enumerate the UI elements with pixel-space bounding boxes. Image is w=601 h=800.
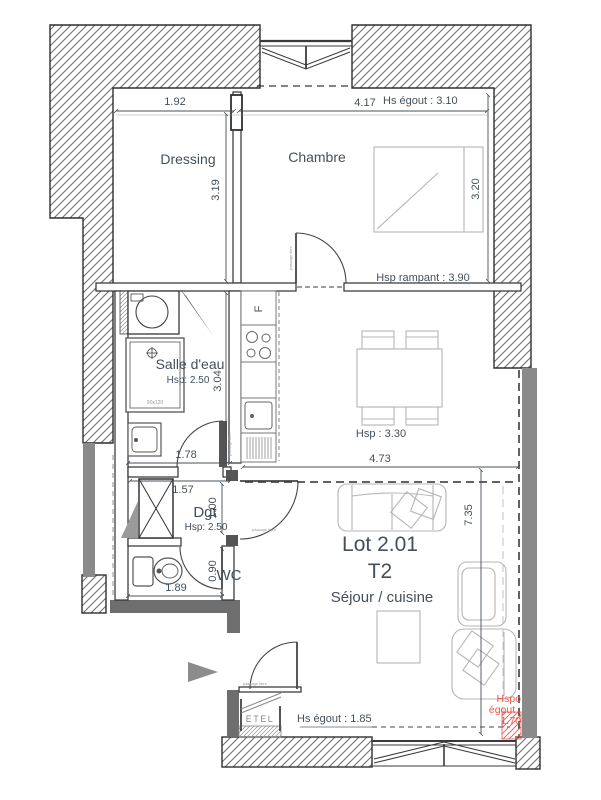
washing-machine (120, 291, 179, 334)
window-bottom (372, 741, 516, 766)
dining-table (357, 331, 442, 425)
window-top (260, 41, 352, 69)
floor-plan-drawing: F (0, 0, 601, 800)
room-label-sejour: Séjour / cuisine (331, 589, 434, 606)
dim-320: 3.20 (470, 178, 482, 199)
wall-left-gray-strip (83, 443, 95, 577)
dim-hs-egout-bas: Hs égout : 1.85 (297, 713, 372, 725)
passage-note-entry: passage libre (243, 681, 268, 686)
passage-note-dgt: passage libre (252, 527, 277, 532)
stub-dgt-top (226, 470, 238, 481)
wall-mid-right (344, 283, 521, 291)
stub-dgt-bottom (226, 535, 238, 546)
dim-189: 1.89 (165, 582, 186, 594)
wall-sde-dgt-a (128, 467, 178, 477)
lot-type-label: T2 (368, 560, 393, 583)
room-label-salle-eau: Salle d'eau (156, 356, 225, 372)
wall-bottom (222, 737, 372, 767)
text-labels: Dressing Chambre Salle d'eau Hsp: 2.50 D… (147, 95, 482, 725)
dim-735: 7.35 (463, 504, 475, 525)
dim-hs-egout-haut: Hs égout : 3.10 (383, 95, 458, 107)
etel-base-hatch (239, 726, 281, 737)
wall-stub-below-wc (227, 612, 240, 633)
bed (374, 147, 483, 232)
room-label-chambre: Chambre (288, 149, 346, 165)
hspo-egout-line3: 1.70 (501, 715, 522, 727)
furniture (338, 147, 516, 699)
dim-157: 1.57 (172, 484, 193, 496)
armchair-2 (452, 629, 516, 699)
wall-top-right (352, 25, 531, 368)
wall-wc-bottom (110, 600, 240, 613)
wall-entry (239, 687, 301, 692)
dim-473: 4.73 (369, 453, 390, 465)
wall-right-gray (522, 368, 537, 738)
passage-note-sde: passage libre (227, 431, 232, 456)
washbasin (128, 423, 161, 456)
armchair-1 (458, 562, 506, 626)
fridge-label: F (253, 305, 265, 312)
dim-100: 1.00 (207, 497, 219, 518)
sofa (338, 484, 446, 531)
dim-319: 3.19 (210, 179, 222, 200)
sejour-hsp: Hsp : 3.30 (356, 428, 406, 440)
room-label-dressing: Dressing (160, 151, 215, 167)
dim-178: 1.78 (175, 449, 196, 461)
dim-417: 4.17 (354, 97, 375, 109)
wall-entry-post (227, 690, 239, 737)
salle-eau-hsp: Hsp: 2.50 (167, 375, 210, 386)
kitchen-counter (241, 291, 276, 462)
dimension-lines (116, 95, 518, 734)
technical-shaft (139, 479, 173, 538)
dgt-hsp: Hsp: 2.50 (185, 522, 228, 533)
etel-label: ETEL (246, 714, 275, 724)
shower-pivot-door (180, 289, 214, 337)
room-label-wc: WC (217, 567, 242, 584)
wall-left-lower (82, 575, 106, 613)
shower-size-label: 90x120 (147, 400, 164, 406)
passage-note-chambre: passage libre (288, 245, 293, 270)
wall-bottom-right-corner (516, 737, 540, 769)
wall-mid-left (96, 283, 296, 291)
dim-304: 3.04 (212, 370, 224, 391)
dim-hsp-rampant: Hsp rampant : 3.90 (376, 272, 470, 284)
wall-dgt-wc (128, 538, 181, 546)
dim-090: 0.90 (207, 560, 219, 581)
coffee-table (377, 611, 420, 663)
door-chambre (296, 233, 346, 283)
floor-plan-page: F (0, 0, 601, 800)
dim-192: 1.92 (164, 96, 185, 108)
pillar-dressing (231, 95, 242, 130)
red-annotation: Hspo égout : 1.70 (489, 693, 521, 739)
lot-label: Lot 2.01 (342, 533, 418, 556)
entry-arrow (188, 662, 218, 682)
